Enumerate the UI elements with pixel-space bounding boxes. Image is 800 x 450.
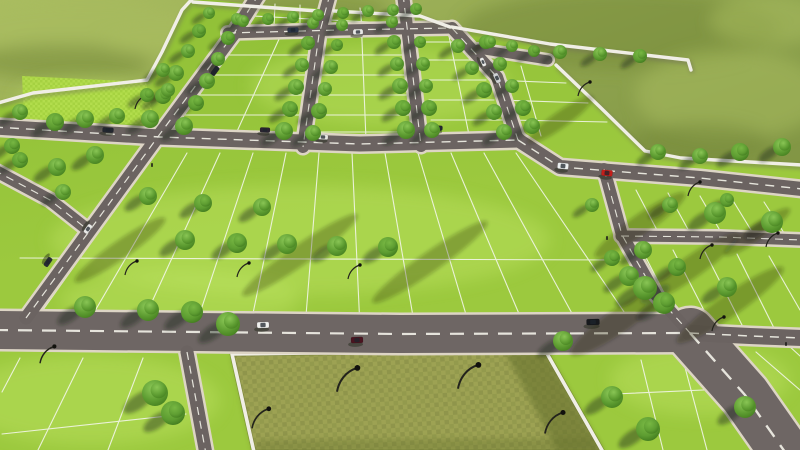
tree-canopy-top bbox=[144, 301, 158, 315]
tree-canopy-top bbox=[216, 53, 225, 62]
tree-canopy-top bbox=[488, 37, 495, 44]
tree-canopy-top bbox=[429, 123, 439, 133]
tree bbox=[633, 49, 647, 63]
tree bbox=[4, 138, 20, 154]
tree-canopy-top bbox=[608, 388, 622, 402]
tree-canopy-top bbox=[674, 259, 685, 270]
tree bbox=[553, 45, 567, 59]
tree-canopy-top bbox=[640, 242, 651, 253]
tree bbox=[505, 79, 519, 93]
tree-canopy-top bbox=[161, 64, 170, 73]
pedestrian bbox=[606, 236, 608, 240]
tree-canopy-top bbox=[329, 61, 338, 70]
tree-canopy-top bbox=[768, 213, 782, 227]
tree bbox=[386, 16, 398, 28]
tree bbox=[175, 117, 193, 135]
pond-bottom-shade bbox=[254, 438, 600, 450]
tree-canopy-top bbox=[655, 145, 665, 155]
tree-canopy-top bbox=[400, 101, 410, 111]
tree-canopy-top bbox=[520, 101, 530, 111]
tree-canopy-top bbox=[52, 114, 63, 125]
tree bbox=[692, 148, 708, 164]
tree bbox=[336, 19, 348, 31]
tree bbox=[74, 296, 96, 318]
tree bbox=[188, 95, 204, 111]
tree bbox=[199, 73, 215, 89]
aerial-plot-layout-render bbox=[0, 0, 800, 450]
tree bbox=[156, 63, 170, 77]
tree-canopy-top bbox=[626, 268, 638, 280]
car-windshield bbox=[260, 323, 265, 327]
tree-canopy-top bbox=[151, 382, 167, 398]
lamp-head bbox=[52, 344, 56, 348]
tree-canopy-top bbox=[200, 195, 211, 206]
tree bbox=[301, 36, 315, 50]
tree bbox=[601, 386, 623, 408]
tree-canopy-top bbox=[193, 96, 203, 106]
car-windshield bbox=[354, 338, 359, 342]
tree bbox=[493, 57, 507, 71]
tree-canopy-top bbox=[291, 12, 298, 19]
tree bbox=[634, 241, 652, 259]
tree-canopy-top bbox=[259, 199, 270, 210]
tree-canopy-top bbox=[310, 126, 320, 136]
tree-canopy-top bbox=[741, 398, 755, 412]
tree bbox=[553, 331, 573, 351]
car-windshield bbox=[263, 128, 268, 132]
tree bbox=[48, 158, 66, 176]
tree-canopy-top bbox=[779, 139, 790, 150]
tree bbox=[528, 45, 540, 57]
tree-canopy-top bbox=[145, 89, 154, 98]
render-viewport bbox=[0, 0, 800, 450]
tree-canopy-top bbox=[418, 37, 425, 44]
tree bbox=[109, 108, 125, 124]
lamp-head bbox=[560, 410, 565, 415]
tree-canopy-top bbox=[287, 102, 297, 112]
tree bbox=[324, 60, 338, 74]
tree-canopy-top bbox=[660, 294, 674, 308]
tree bbox=[378, 237, 398, 257]
tree-canopy-top bbox=[281, 123, 292, 134]
tree-canopy-top bbox=[145, 188, 156, 199]
tree bbox=[387, 35, 401, 49]
tree-canopy-top bbox=[529, 119, 539, 129]
tree-canopy-top bbox=[667, 198, 677, 208]
tree-canopy-top bbox=[414, 4, 421, 11]
car-windshield bbox=[356, 30, 361, 34]
tree bbox=[421, 100, 437, 116]
tree bbox=[140, 88, 154, 102]
lamp-head bbox=[710, 243, 713, 246]
tree-canopy-top bbox=[641, 278, 656, 293]
car-windshield bbox=[321, 135, 326, 139]
tree bbox=[337, 7, 349, 19]
tree bbox=[410, 3, 422, 15]
tree bbox=[318, 82, 332, 96]
tree bbox=[773, 138, 791, 156]
lamp-head bbox=[247, 261, 250, 264]
tree-canopy-top bbox=[224, 314, 239, 329]
tree-canopy-top bbox=[532, 46, 539, 53]
tree-canopy-top bbox=[166, 84, 175, 93]
car-windshield bbox=[590, 320, 596, 324]
tree bbox=[734, 396, 756, 418]
tree-canopy-top bbox=[207, 8, 214, 15]
tree-canopy-top bbox=[390, 17, 397, 24]
tree-canopy-top bbox=[737, 144, 748, 155]
tree bbox=[216, 312, 240, 336]
tree bbox=[137, 299, 159, 321]
tree bbox=[161, 401, 185, 425]
tree bbox=[181, 301, 203, 323]
tree-canopy-top bbox=[182, 232, 194, 244]
tree bbox=[327, 236, 347, 256]
tree-canopy-top bbox=[334, 238, 346, 250]
tree bbox=[362, 5, 374, 17]
tree-canopy-top bbox=[316, 10, 323, 17]
tree bbox=[168, 65, 184, 81]
tree bbox=[295, 58, 309, 72]
tree-canopy-top bbox=[147, 111, 158, 122]
tree-canopy-top bbox=[17, 105, 27, 115]
pond-area bbox=[232, 350, 603, 450]
tree-canopy-top bbox=[266, 14, 273, 21]
tree-canopy-top bbox=[186, 45, 195, 54]
tree-canopy-top bbox=[711, 204, 725, 218]
tree-canopy-top bbox=[609, 251, 619, 261]
tree-canopy-top bbox=[335, 40, 342, 47]
lamp-head bbox=[588, 80, 591, 83]
tree bbox=[484, 36, 496, 48]
tree-canopy-top bbox=[60, 185, 70, 195]
tree bbox=[465, 61, 479, 75]
tree bbox=[717, 277, 737, 297]
tree-canopy-top bbox=[81, 298, 95, 312]
tree-canopy-top bbox=[114, 109, 124, 119]
tree-canopy-top bbox=[17, 153, 27, 163]
lamp-head bbox=[698, 180, 701, 183]
tree bbox=[604, 250, 620, 266]
tree bbox=[414, 36, 426, 48]
tree bbox=[221, 31, 235, 45]
tree bbox=[390, 57, 404, 71]
lamp-head bbox=[355, 365, 361, 371]
tree-canopy-top bbox=[724, 279, 736, 291]
tree bbox=[311, 103, 327, 119]
tree bbox=[650, 144, 666, 160]
tree-canopy-top bbox=[197, 25, 206, 34]
lamp-head bbox=[476, 362, 482, 368]
car-windshield bbox=[560, 164, 565, 169]
tree bbox=[585, 198, 599, 212]
tree-canopy-top bbox=[284, 236, 296, 248]
tree-canopy-top bbox=[395, 58, 404, 67]
tree bbox=[192, 24, 206, 38]
tree-canopy-top bbox=[306, 37, 315, 46]
tree bbox=[397, 121, 415, 139]
car-windshield bbox=[291, 28, 296, 32]
tree-canopy-top bbox=[421, 58, 430, 67]
tree bbox=[277, 234, 297, 254]
tree-canopy-top bbox=[340, 20, 347, 27]
tree-canopy-top bbox=[481, 83, 491, 93]
tree-canopy-top bbox=[403, 122, 414, 133]
tree bbox=[76, 110, 94, 128]
tree bbox=[262, 13, 274, 25]
tree bbox=[331, 39, 343, 51]
tree bbox=[253, 198, 271, 216]
tree bbox=[633, 276, 657, 300]
tree-canopy-top bbox=[510, 80, 519, 89]
tree bbox=[181, 44, 195, 58]
tree bbox=[653, 292, 675, 314]
tree bbox=[476, 82, 492, 98]
tree-canopy-top bbox=[558, 46, 567, 55]
tree bbox=[211, 52, 225, 66]
tree-canopy-top bbox=[9, 139, 19, 149]
tree-canopy-top bbox=[456, 40, 465, 49]
tree bbox=[416, 57, 430, 71]
pedestrian bbox=[785, 342, 787, 346]
tree-canopy-top bbox=[82, 111, 93, 122]
tree bbox=[312, 9, 324, 21]
tree bbox=[288, 79, 304, 95]
car-windshield bbox=[105, 128, 110, 132]
tree bbox=[12, 104, 28, 120]
tree bbox=[46, 113, 64, 131]
tree bbox=[451, 39, 465, 53]
tree-canopy-top bbox=[241, 16, 248, 23]
tree-canopy-top bbox=[560, 333, 572, 345]
tree-canopy-top bbox=[697, 149, 707, 159]
tree bbox=[424, 122, 440, 138]
tree-canopy-top bbox=[54, 159, 65, 170]
tree bbox=[486, 104, 502, 120]
tree-canopy-top bbox=[366, 6, 373, 13]
tree bbox=[496, 124, 512, 140]
tree bbox=[12, 152, 28, 168]
tree bbox=[237, 15, 249, 27]
tree bbox=[392, 78, 408, 94]
tree-canopy-top bbox=[341, 8, 348, 15]
tree bbox=[395, 100, 411, 116]
tree-canopy-top bbox=[300, 59, 309, 68]
tree-canopy-top bbox=[510, 41, 517, 48]
tree-canopy-top bbox=[598, 48, 607, 57]
tree-canopy-top bbox=[226, 32, 235, 41]
tree bbox=[419, 79, 433, 93]
tree-canopy-top bbox=[590, 199, 599, 208]
tree bbox=[287, 11, 299, 23]
tree bbox=[175, 230, 195, 250]
tree bbox=[720, 193, 734, 207]
lamp-head bbox=[135, 259, 138, 262]
tree-canopy-top bbox=[470, 62, 479, 71]
tree-canopy-top bbox=[173, 66, 183, 76]
tree bbox=[668, 258, 686, 276]
tree-canopy-top bbox=[424, 80, 433, 89]
tree bbox=[86, 146, 104, 164]
pedestrian bbox=[151, 163, 153, 167]
tree bbox=[194, 194, 212, 212]
tree bbox=[662, 197, 678, 213]
tree bbox=[515, 100, 531, 116]
tree-canopy-top bbox=[385, 239, 397, 251]
tree-canopy-top bbox=[323, 83, 332, 92]
tree-canopy-top bbox=[397, 79, 407, 89]
tree-canopy-top bbox=[204, 74, 214, 84]
tree-canopy-top bbox=[391, 5, 398, 12]
lamp-head bbox=[266, 406, 271, 411]
tree-canopy-top bbox=[181, 118, 192, 129]
tree bbox=[305, 125, 321, 141]
tree bbox=[593, 47, 607, 61]
tree bbox=[731, 143, 749, 161]
tree bbox=[387, 4, 399, 16]
lamp-head bbox=[722, 315, 725, 318]
tree-canopy-top bbox=[188, 303, 202, 317]
tree-canopy-top bbox=[644, 419, 659, 434]
tree-canopy-top bbox=[316, 104, 326, 114]
tree-canopy-top bbox=[498, 58, 507, 67]
tree bbox=[524, 118, 540, 134]
tree bbox=[227, 233, 247, 253]
tree-canopy-top bbox=[426, 101, 436, 111]
tree bbox=[203, 7, 215, 19]
tree bbox=[139, 187, 157, 205]
tree bbox=[55, 184, 71, 200]
tree bbox=[506, 40, 518, 52]
tree-canopy-top bbox=[234, 235, 246, 247]
tree-canopy-top bbox=[638, 50, 647, 59]
tree bbox=[275, 122, 293, 140]
tree bbox=[141, 110, 159, 128]
tree bbox=[161, 83, 175, 97]
lamp-head bbox=[358, 263, 361, 266]
tree-canopy-top bbox=[501, 125, 511, 135]
tree-canopy-top bbox=[92, 147, 103, 158]
tree-canopy-top bbox=[491, 105, 501, 115]
tree bbox=[282, 101, 298, 117]
tree-canopy-top bbox=[293, 80, 303, 90]
tree bbox=[142, 380, 168, 406]
tree-canopy-top bbox=[725, 194, 734, 203]
tree-canopy-top bbox=[169, 403, 184, 418]
tree bbox=[761, 211, 783, 233]
tree bbox=[636, 417, 660, 441]
tree-canopy-top bbox=[392, 36, 401, 45]
car-windshield bbox=[604, 171, 609, 176]
